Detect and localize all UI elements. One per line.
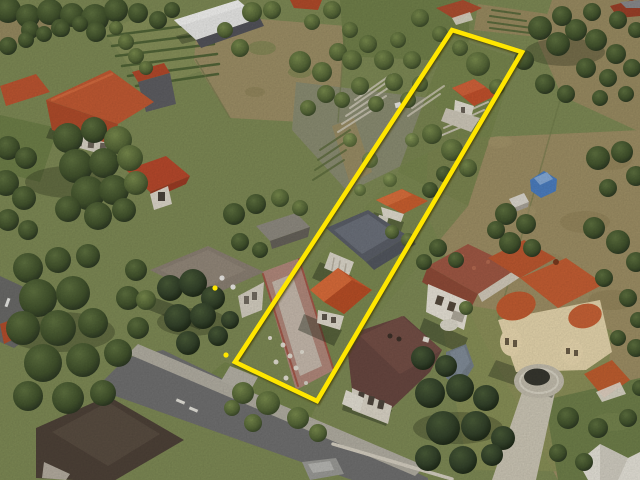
boundary-marker-dot [212,285,217,290]
aerial-imagery-viewport[interactable] [0,0,640,480]
aerial-3d-map[interactable] [0,0,640,480]
boundary-marker-dot [223,352,228,357]
photo-grain-overlay [0,0,640,480]
